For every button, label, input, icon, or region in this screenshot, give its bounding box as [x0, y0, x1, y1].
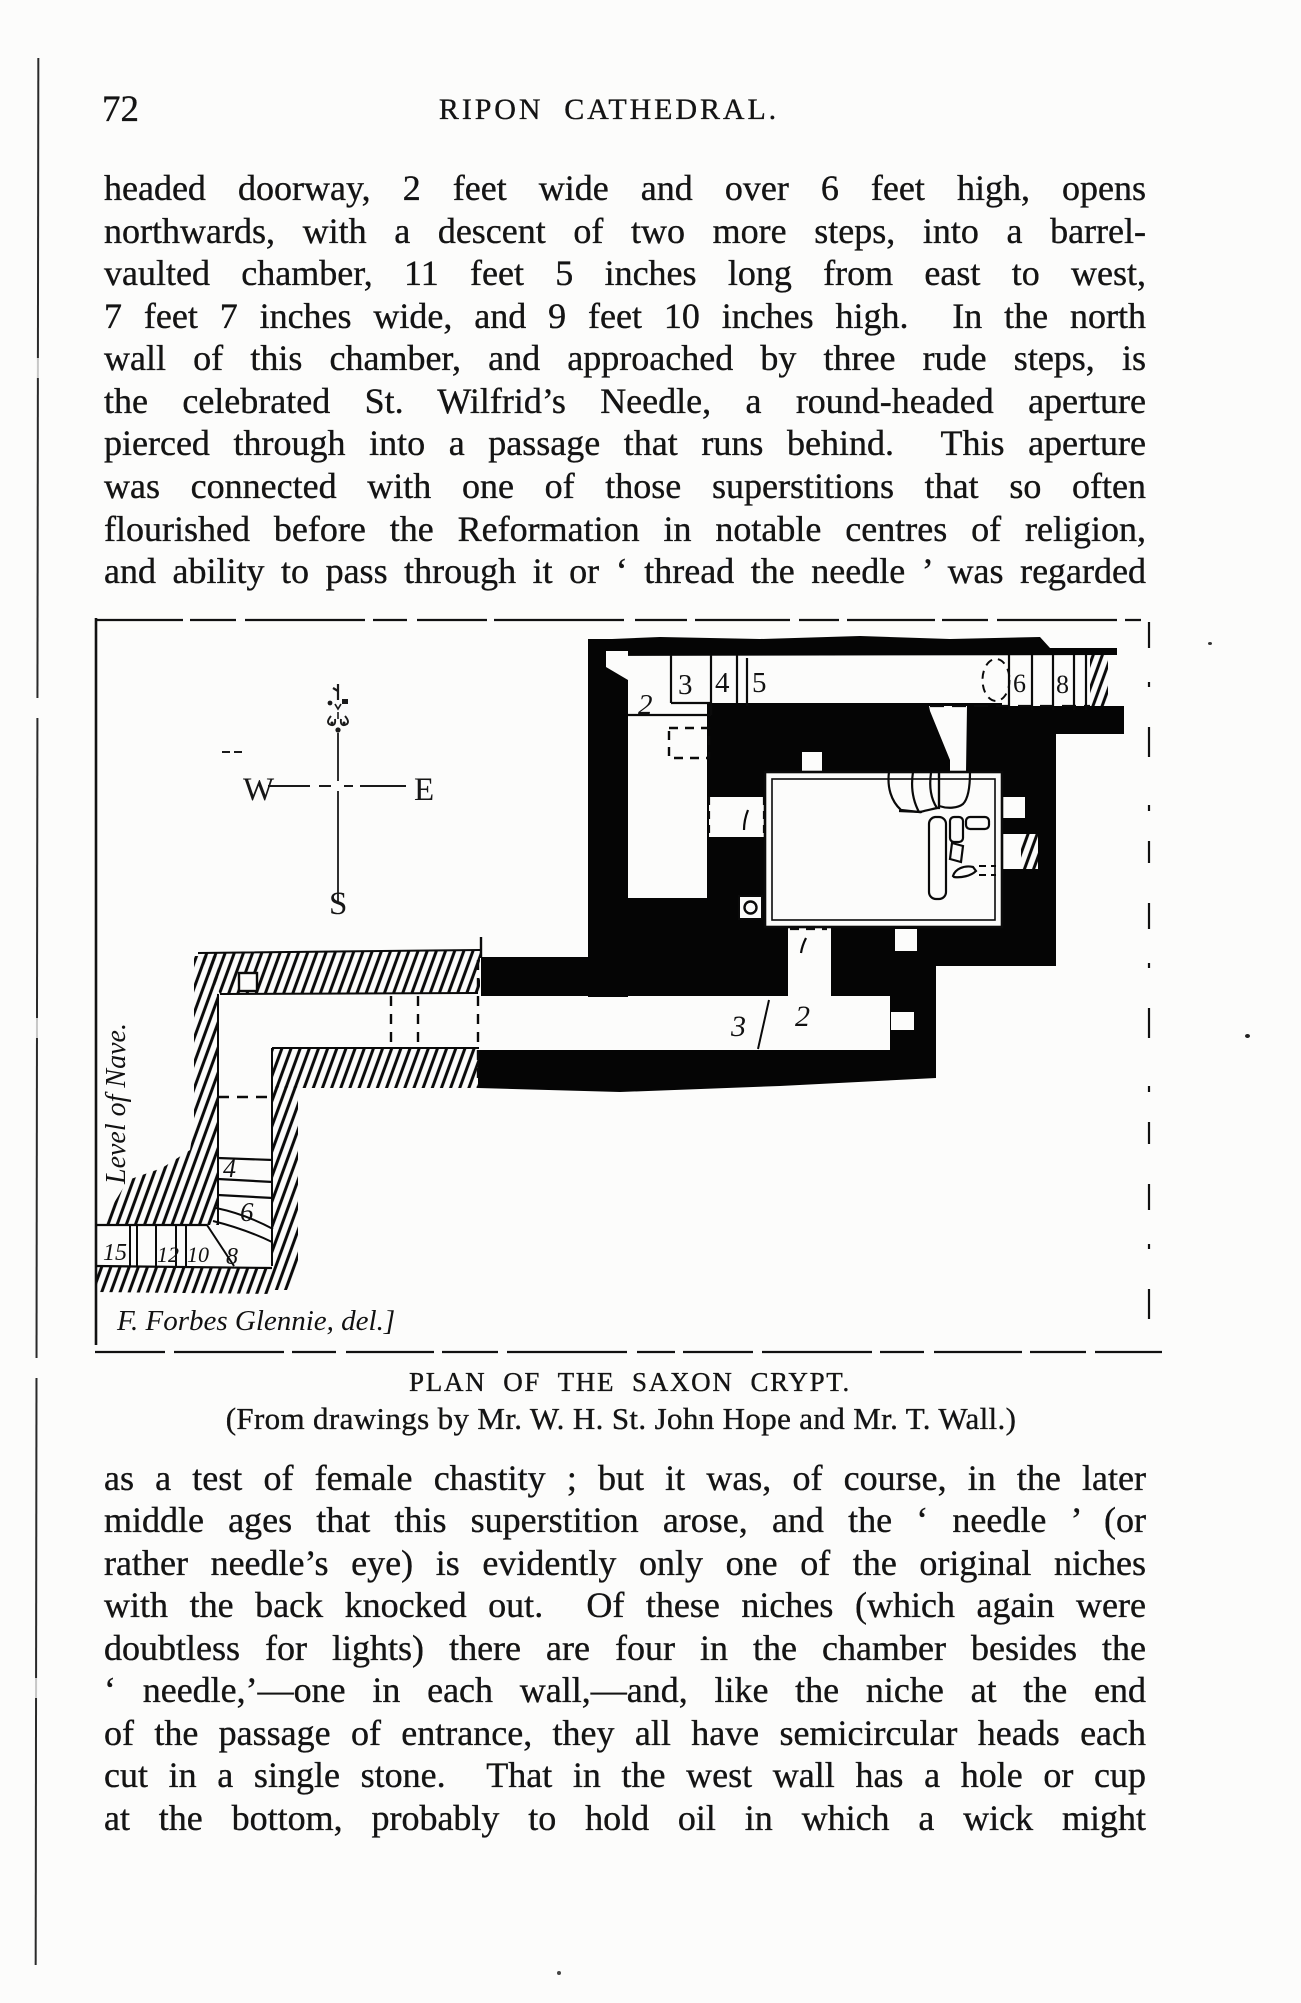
svg-text:3: 3 [730, 1010, 746, 1043]
svg-text:6: 6 [1013, 669, 1026, 698]
svg-text:W: W [243, 772, 275, 808]
svg-text:8: 8 [226, 1244, 238, 1270]
svg-text:E: E [414, 772, 434, 808]
svg-text:2: 2 [638, 689, 653, 721]
svg-text:4: 4 [223, 1154, 236, 1183]
svg-text:5: 5 [752, 667, 767, 699]
svg-text:10: 10 [187, 1242, 209, 1267]
svg-text:F. Forbes Glennie, del.]: F. Forbes Glennie, del.] [116, 1305, 395, 1337]
svg-text:8: 8 [1056, 670, 1069, 699]
svg-text:15: 15 [103, 1240, 127, 1266]
svg-text:12: 12 [157, 1242, 179, 1267]
svg-text:Level of Nave.: Level of Nave. [101, 1023, 132, 1185]
svg-text:2: 2 [795, 1000, 810, 1033]
svg-text:S: S [329, 886, 347, 922]
svg-text:4: 4 [715, 667, 730, 699]
svg-text:3: 3 [678, 669, 693, 701]
svg-text:6: 6 [240, 1197, 254, 1227]
